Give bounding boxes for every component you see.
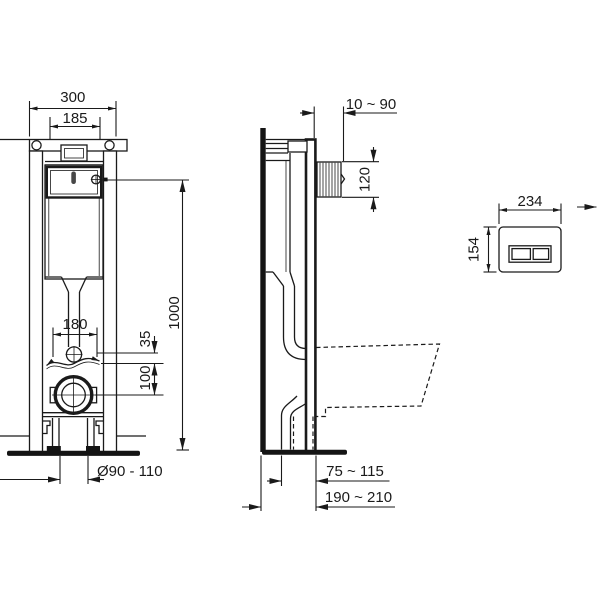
flush-access-box (61, 145, 87, 161)
side-view (260, 128, 439, 455)
flush-sleeve (315, 162, 344, 197)
floor-bracket-right (96, 421, 104, 434)
front-view (0, 140, 146, 456)
dim-frame-depth: 190 ~ 210 (325, 489, 392, 506)
dim-fixing-distance: 180 (62, 316, 87, 333)
frame-rail-left (30, 151, 43, 452)
front-rail (306, 140, 315, 453)
wc-frame-technical-drawing: 300 185 180 35 100 1000 Ø90 - 110 (0, 0, 600, 600)
dim-outlet-diameter: Ø90 - 110 (97, 463, 163, 480)
dim-plate-height: 154 (466, 237, 483, 262)
drain-pipe-side (282, 396, 298, 450)
base-plate-front (7, 451, 140, 456)
flush-access-box-side (288, 141, 307, 152)
dim-frame-width: 300 (60, 89, 85, 106)
dim-wall-finish-range: 10 ~ 90 (346, 96, 396, 113)
dim-plate-width: 234 (517, 193, 542, 210)
frame-rail-right (104, 151, 117, 452)
foot-pad-left (47, 446, 61, 451)
floor-bracket-left (43, 421, 51, 434)
dim-flush-pipe-offset: 35 (137, 331, 154, 348)
back-rail (260, 128, 265, 452)
dim-frame-height: 1000 (166, 296, 183, 329)
flush-plate: 234 154 (466, 193, 597, 272)
dim-cistern-width: 185 (62, 110, 87, 127)
dim-flush-bend-height: 120 (357, 167, 374, 192)
foot-pad-right (86, 446, 100, 451)
technical-drawing-page: 300 185 180 35 100 1000 Ø90 - 110 (0, 0, 600, 600)
base-plate-side (262, 450, 347, 455)
float-valve-marker (71, 172, 76, 185)
dim-outlet-to-wall: 75 ~ 115 (326, 463, 384, 480)
dim-outlet-offset: 100 (137, 365, 154, 390)
